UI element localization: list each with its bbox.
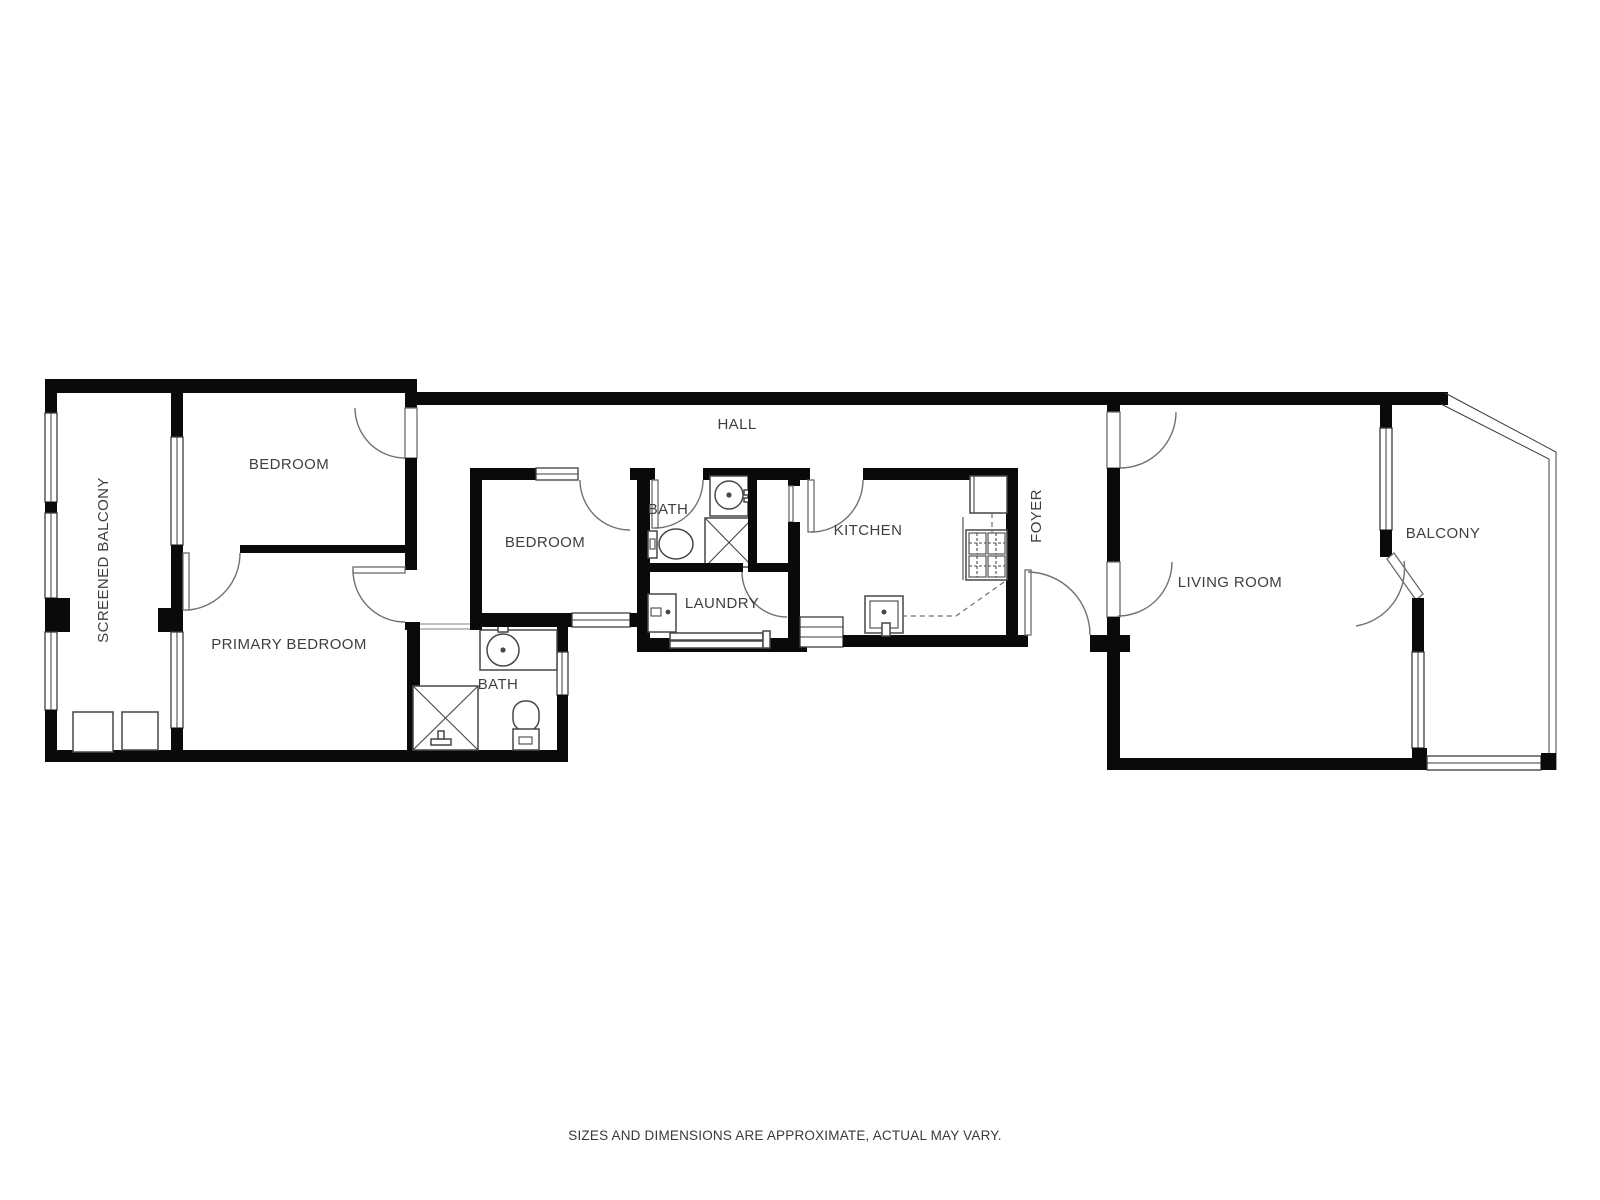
wall-top-left bbox=[45, 379, 417, 393]
wall-living-east bbox=[1412, 748, 1427, 770]
wall-laundry-east bbox=[788, 572, 800, 647]
washer-dryer bbox=[670, 641, 763, 648]
wall-top-main bbox=[405, 392, 1448, 405]
wall-balcony-divider bbox=[171, 545, 183, 608]
exterior-walls bbox=[45, 379, 1448, 762]
balcony bbox=[1427, 393, 1556, 770]
sink-drain bbox=[726, 492, 731, 497]
washer-dryer bbox=[670, 633, 763, 640]
closet-door-leaf bbox=[789, 486, 793, 522]
door-swing-arc bbox=[1118, 562, 1172, 616]
wall-closet-east bbox=[788, 480, 800, 486]
entry-door-leaf bbox=[1025, 570, 1031, 635]
wall-balcony-divider bbox=[171, 392, 183, 437]
bedroom-2 bbox=[470, 468, 650, 652]
balcony-chair bbox=[122, 712, 158, 750]
wall-hall-west bbox=[405, 458, 417, 570]
label-living-room: LIVING ROOM bbox=[1178, 574, 1282, 591]
label-bedroom-top: BEDROOM bbox=[249, 456, 329, 473]
wall-bedroom-divider bbox=[240, 545, 407, 553]
window-pass bbox=[800, 617, 843, 647]
wall-bottom-left bbox=[45, 750, 568, 762]
wall-closet-west bbox=[748, 468, 757, 572]
wall-kitchen-east bbox=[1006, 468, 1018, 647]
wall-living-east bbox=[1380, 530, 1392, 557]
door-swing-arc bbox=[1120, 412, 1176, 468]
door-swing-arc bbox=[353, 570, 405, 622]
wall-balcony-divider bbox=[171, 728, 183, 750]
label-bath-upper: BATH bbox=[648, 501, 689, 518]
laundry-sink bbox=[648, 594, 676, 632]
wall-living-south bbox=[1107, 758, 1427, 770]
wall-living-east bbox=[1380, 403, 1392, 428]
wall-living-west bbox=[1107, 403, 1120, 412]
toilet-bowl bbox=[513, 701, 539, 731]
screened-balcony bbox=[73, 392, 183, 752]
wall-left-column bbox=[45, 598, 70, 632]
label-hall: HALL bbox=[717, 416, 756, 433]
wall-foyer-south bbox=[1090, 635, 1130, 652]
sink-drain bbox=[500, 647, 505, 652]
wall-closet-east bbox=[788, 522, 800, 572]
door-leaf-bedroom1 bbox=[405, 408, 417, 458]
label-primary-bedroom: PRIMARY BEDROOM bbox=[211, 636, 366, 653]
toilet-tank bbox=[513, 729, 539, 750]
wall-hall-west bbox=[405, 622, 420, 630]
toilet-bowl bbox=[659, 529, 693, 559]
kitchen-pass-window bbox=[800, 617, 843, 647]
door-leaf bbox=[1107, 562, 1120, 617]
wall-bedroom-south bbox=[470, 613, 572, 627]
floor-plan: SCREENED BALCONY BEDROOM PRIMARY BEDROOM… bbox=[0, 0, 1600, 1200]
wall-laundry-north bbox=[650, 563, 743, 572]
wall-bath-east bbox=[557, 695, 568, 762]
wall-left-pier bbox=[45, 502, 57, 513]
sink-drain bbox=[666, 610, 671, 615]
floor-plan-page: SCREENED BALCONY BEDROOM PRIMARY BEDROOM… bbox=[0, 0, 1600, 1200]
label-foyer: FOYER bbox=[1028, 489, 1045, 543]
shower-faucet-icon bbox=[438, 731, 444, 739]
door-leaf bbox=[808, 480, 814, 532]
wall-kitchen-south bbox=[843, 635, 1018, 647]
door-swing-arc bbox=[189, 553, 240, 610]
wall-living-west bbox=[1107, 468, 1120, 562]
balcony-screen-outer bbox=[1445, 393, 1556, 770]
label-screened-balcony: SCREENED BALCONY bbox=[95, 477, 112, 643]
wall-column bbox=[158, 608, 183, 632]
wall-hall-west bbox=[405, 392, 417, 408]
closet bbox=[748, 468, 800, 647]
wall-living-west bbox=[1107, 652, 1120, 758]
wall-bedroom-north bbox=[470, 468, 536, 480]
wall-bath-north bbox=[650, 468, 655, 480]
label-kitchen: KITCHEN bbox=[834, 522, 903, 539]
door-leaf bbox=[183, 553, 189, 610]
label-laundry: LAUNDRY bbox=[685, 595, 759, 612]
bedroom-1 bbox=[183, 392, 420, 630]
entry-door-swing-arc bbox=[1028, 572, 1090, 635]
label-balcony: BALCONY bbox=[1406, 525, 1481, 542]
counter-dashed-line bbox=[903, 582, 1004, 616]
wall-foyer-south bbox=[1018, 635, 1028, 647]
balcony-chair bbox=[73, 712, 113, 752]
door-leaf-primary bbox=[353, 567, 405, 573]
faucet-icon bbox=[882, 623, 890, 636]
toilet-tank bbox=[648, 531, 657, 558]
wall-balcony-corner bbox=[1541, 753, 1556, 770]
door-leaf bbox=[1107, 412, 1120, 468]
wall-bedroom-west bbox=[470, 468, 482, 630]
shower-faucet-icon bbox=[431, 739, 451, 745]
label-bedroom-middle: BEDROOM bbox=[505, 534, 585, 551]
label-bath-lower: BATH bbox=[478, 676, 519, 693]
wall-living-east bbox=[1412, 598, 1424, 652]
balcony-door-leaf bbox=[1387, 553, 1423, 600]
sink-drain bbox=[882, 610, 887, 615]
balcony-screen-inner bbox=[1441, 404, 1549, 756]
disclaimer-text: SIZES AND DIMENSIONS ARE APPROXIMATE, AC… bbox=[568, 1128, 1001, 1143]
door-swing-arc bbox=[580, 480, 630, 530]
door-swing-arc bbox=[355, 408, 405, 458]
washer-dryer-end bbox=[763, 631, 770, 648]
kitchen-cabinet bbox=[970, 476, 1007, 513]
wall-left-pier bbox=[45, 379, 57, 413]
wall-living-west bbox=[1107, 617, 1120, 635]
